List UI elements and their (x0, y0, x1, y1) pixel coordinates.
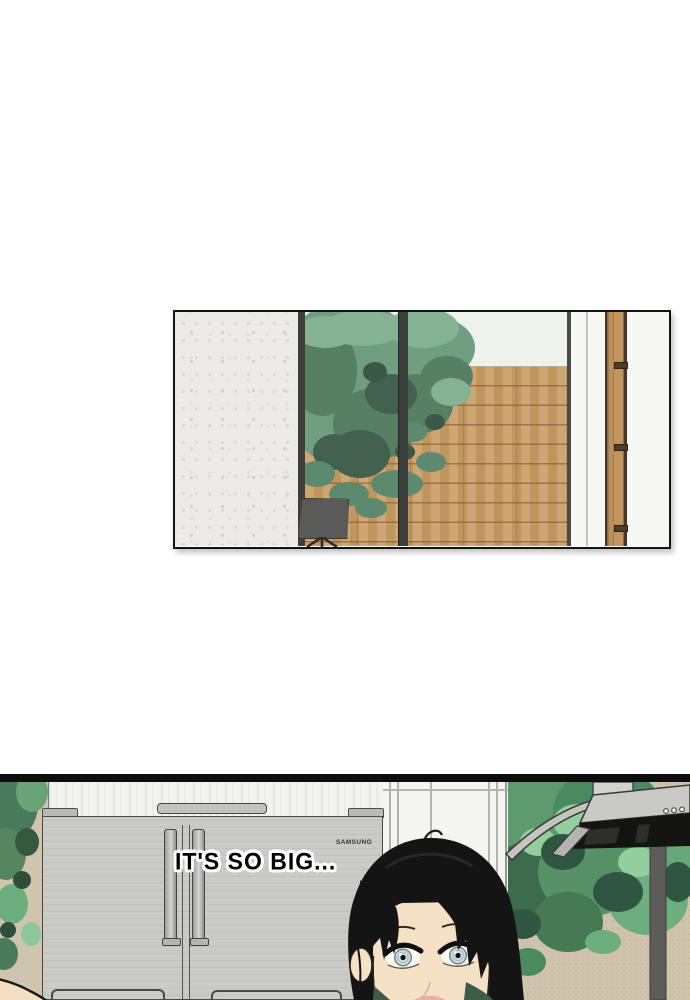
right-wall (571, 312, 669, 546)
panel-kitchen-scene: SAMSUNG (0, 774, 690, 1000)
panel-window-scene (173, 310, 671, 549)
frame-line (383, 789, 510, 791)
floor-lamp-shade (298, 498, 349, 539)
door-hinge (614, 444, 628, 451)
window-mullion (398, 312, 408, 546)
floor-lamp-legs (300, 537, 346, 547)
fridge-handle-left (164, 829, 177, 941)
concrete-wall (175, 312, 299, 546)
fridge-drawer-left (51, 989, 165, 1000)
wood-door-edge (605, 312, 627, 546)
fridge-drawer-right (211, 990, 342, 1000)
handle-cap (162, 938, 181, 946)
fridge-handle-right (192, 829, 205, 941)
hood-button (672, 808, 677, 813)
background-foliage-left (0, 782, 48, 1000)
hood-button (664, 809, 669, 814)
door-hinge (614, 525, 628, 532)
hood-duct-post (650, 844, 666, 1000)
webtoon-page: { "page": { "type": "webtoon comic page"… (0, 0, 690, 1000)
speech-text: IT'S SO BIG... (175, 847, 336, 875)
wall-seam-line (586, 312, 588, 546)
character (330, 824, 530, 1000)
handle-cap (190, 938, 209, 946)
hood-button (680, 807, 685, 812)
door-hinge (614, 362, 628, 369)
panel-divider-bar (0, 774, 690, 782)
foreground-head (0, 970, 52, 1000)
